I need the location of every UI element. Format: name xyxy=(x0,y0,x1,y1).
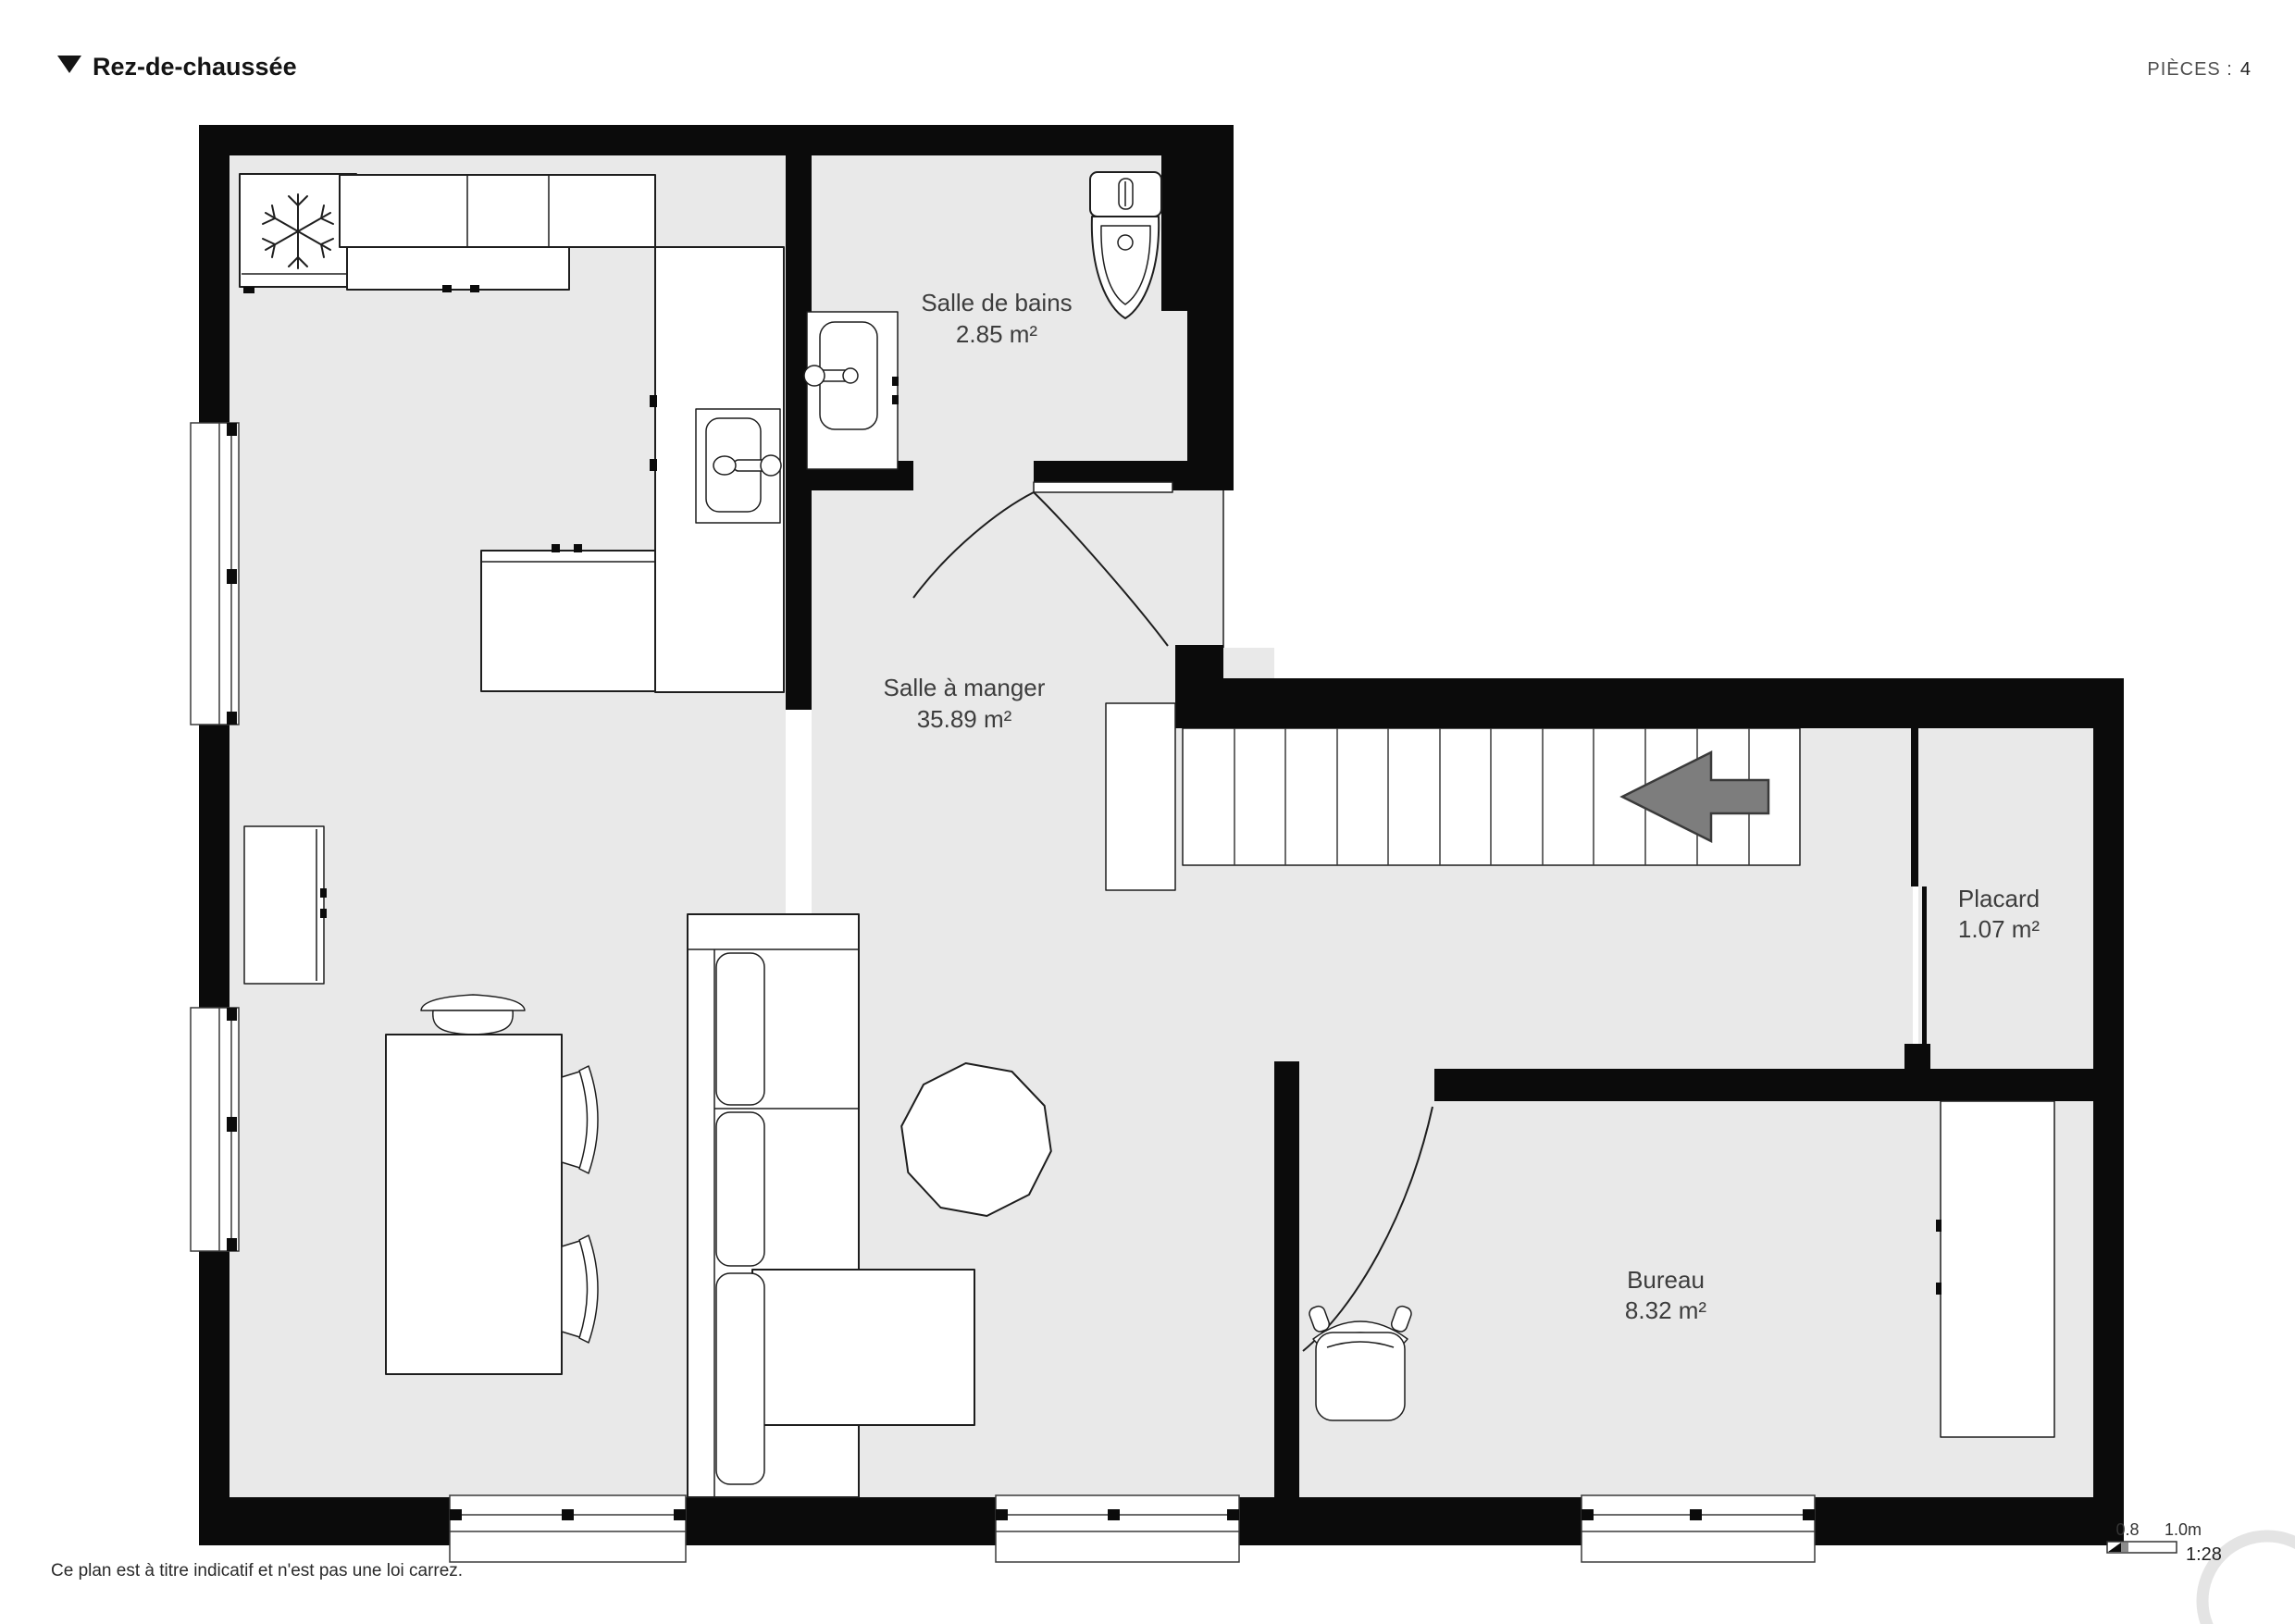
wall-hall-stub xyxy=(1175,645,1223,728)
floor-plan-canvas: Salle de bains 2.85 m² Salle à manger 35… xyxy=(0,0,2295,1624)
label-bathroom-name: Salle de bains xyxy=(921,289,1072,316)
label-closet-name: Placard xyxy=(1958,885,2040,912)
rooms-count-label: PIÈCES : xyxy=(2147,58,2232,80)
label-dining-name: Salle à manger xyxy=(884,674,1046,701)
radiator xyxy=(244,826,327,984)
stairs xyxy=(1183,728,1800,865)
wall-closet-partition xyxy=(1911,725,1918,886)
wall-closet-stub xyxy=(1904,1044,1930,1074)
closet-door-leaf xyxy=(1922,886,1927,1044)
page-title[interactable]: Rez-de-chaussée xyxy=(93,53,297,81)
floor-hallway xyxy=(1183,865,1913,1069)
desk xyxy=(1936,1101,2054,1437)
dining-chair-1 xyxy=(562,1066,598,1173)
wall-bath-right xyxy=(1187,125,1234,490)
scale-tick-end: 1.0m xyxy=(2165,1520,2202,1539)
wall-top xyxy=(199,125,1234,155)
scale-bar: 0.8 1.0m 1:28 xyxy=(2107,1520,2222,1565)
counter xyxy=(347,247,569,292)
chaise xyxy=(752,1270,974,1425)
hall-door-leaf xyxy=(1106,703,1175,890)
label-closet-area: 1.07 m² xyxy=(1958,915,2040,943)
label-bathroom-area: 2.85 m² xyxy=(956,320,1037,348)
kitchen-sink-icon xyxy=(696,409,781,523)
floor-section-header[interactable]: Rez-de-chaussée xyxy=(57,53,297,81)
bathroom-sink-icon xyxy=(804,312,899,469)
floor-office-doorway xyxy=(1299,1069,1434,1101)
disclaimer-text: Ce plan est à titre indicatif et n'est p… xyxy=(51,1561,463,1581)
bathroom-door-leaf xyxy=(1034,482,1172,492)
wall-hall-top xyxy=(1223,678,2124,728)
wall-left xyxy=(199,125,229,1545)
label-office-area: 8.32 m² xyxy=(1625,1296,1706,1324)
scale-ratio: 1:28 xyxy=(2186,1544,2222,1565)
floor-bathroom-doorway xyxy=(913,461,1034,490)
scale-bar-gray-segment xyxy=(2121,1543,2128,1552)
floor-stair-landing xyxy=(1800,728,1913,865)
dining-chair-2 xyxy=(562,1235,598,1343)
wall-office-left xyxy=(1274,1061,1299,1545)
window-bottom-1 xyxy=(450,1495,686,1562)
window-bottom-2 xyxy=(996,1495,1239,1562)
window-left-lower xyxy=(191,1008,239,1251)
label-dining-area: 35.89 m² xyxy=(917,705,1012,733)
wall-office-top xyxy=(1434,1069,2124,1101)
triangle-down-icon[interactable] xyxy=(57,56,81,73)
scale-tick-start: 0.8 xyxy=(2115,1520,2139,1539)
window-bottom-office xyxy=(1582,1495,1815,1562)
rooms-count: PIÈCES :4 xyxy=(2147,58,2251,80)
office-chair xyxy=(1308,1305,1413,1420)
upper-cabinets xyxy=(340,175,655,247)
dining-table xyxy=(386,1035,562,1374)
rooms-count-value: 4 xyxy=(2240,59,2251,80)
exterior-notch xyxy=(1223,490,1274,648)
wall-toilet-step xyxy=(1161,155,1187,311)
wall-right xyxy=(2093,678,2124,1545)
label-office-name: Bureau xyxy=(1627,1266,1705,1294)
kitchen-island xyxy=(481,544,655,691)
window-left-upper xyxy=(191,423,239,725)
